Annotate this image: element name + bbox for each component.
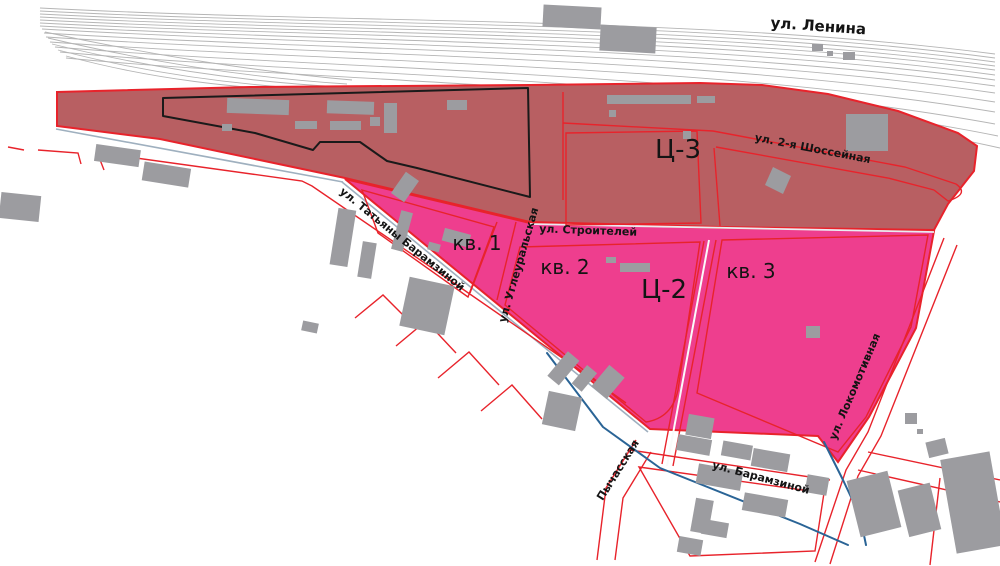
building: [330, 208, 357, 267]
quarter-label-kv2: кв. 2: [540, 255, 589, 279]
building: [812, 44, 823, 51]
building: [447, 100, 467, 110]
building: [843, 52, 855, 60]
building: [542, 4, 601, 29]
building: [370, 117, 380, 126]
building: [847, 471, 902, 537]
quarter-label-kv1: кв. 1: [452, 231, 501, 255]
building: [905, 413, 917, 424]
building: [227, 98, 289, 115]
building: [357, 241, 376, 279]
building: [0, 192, 41, 222]
building: [701, 519, 729, 538]
street-line: [8, 147, 24, 150]
street-line: [38, 150, 81, 164]
building: [599, 25, 656, 54]
building: [399, 277, 454, 335]
street-stub: [481, 385, 542, 419]
building: [301, 320, 319, 333]
building: [827, 51, 833, 56]
building: [846, 114, 888, 151]
building: [222, 124, 232, 131]
building: [685, 414, 714, 439]
building: [925, 438, 948, 458]
building: [806, 326, 820, 338]
building: [620, 263, 650, 272]
building: [606, 257, 616, 263]
building: [384, 103, 397, 133]
building: [542, 391, 582, 431]
building: [330, 121, 361, 130]
building: [142, 162, 191, 188]
quarter-label-kv3: кв. 3: [726, 259, 775, 283]
map-canvas[interactable]: ул. Ленина Ц-3 Ц-2 кв. 1 кв. 2 кв. 3 ул.…: [0, 0, 1000, 566]
building: [609, 110, 616, 117]
building: [295, 121, 317, 129]
building: [898, 483, 942, 538]
zone-label-c2: Ц-2: [641, 275, 687, 305]
rail-track: [58, 50, 332, 90]
building: [677, 536, 703, 556]
building: [607, 95, 691, 104]
street-stub: [438, 352, 499, 385]
street-label-pychasskaya: Пычасская: [594, 437, 642, 503]
zone-label-c3: Ц-3: [655, 135, 701, 165]
building: [742, 492, 788, 517]
building: [697, 96, 715, 103]
city-plan-map: ул. Ленина Ц-3 Ц-2 кв. 1 кв. 2 кв. 3 ул.…: [0, 0, 1000, 566]
building: [721, 441, 753, 461]
building: [940, 451, 1000, 553]
building: [917, 429, 923, 434]
building: [327, 100, 374, 115]
